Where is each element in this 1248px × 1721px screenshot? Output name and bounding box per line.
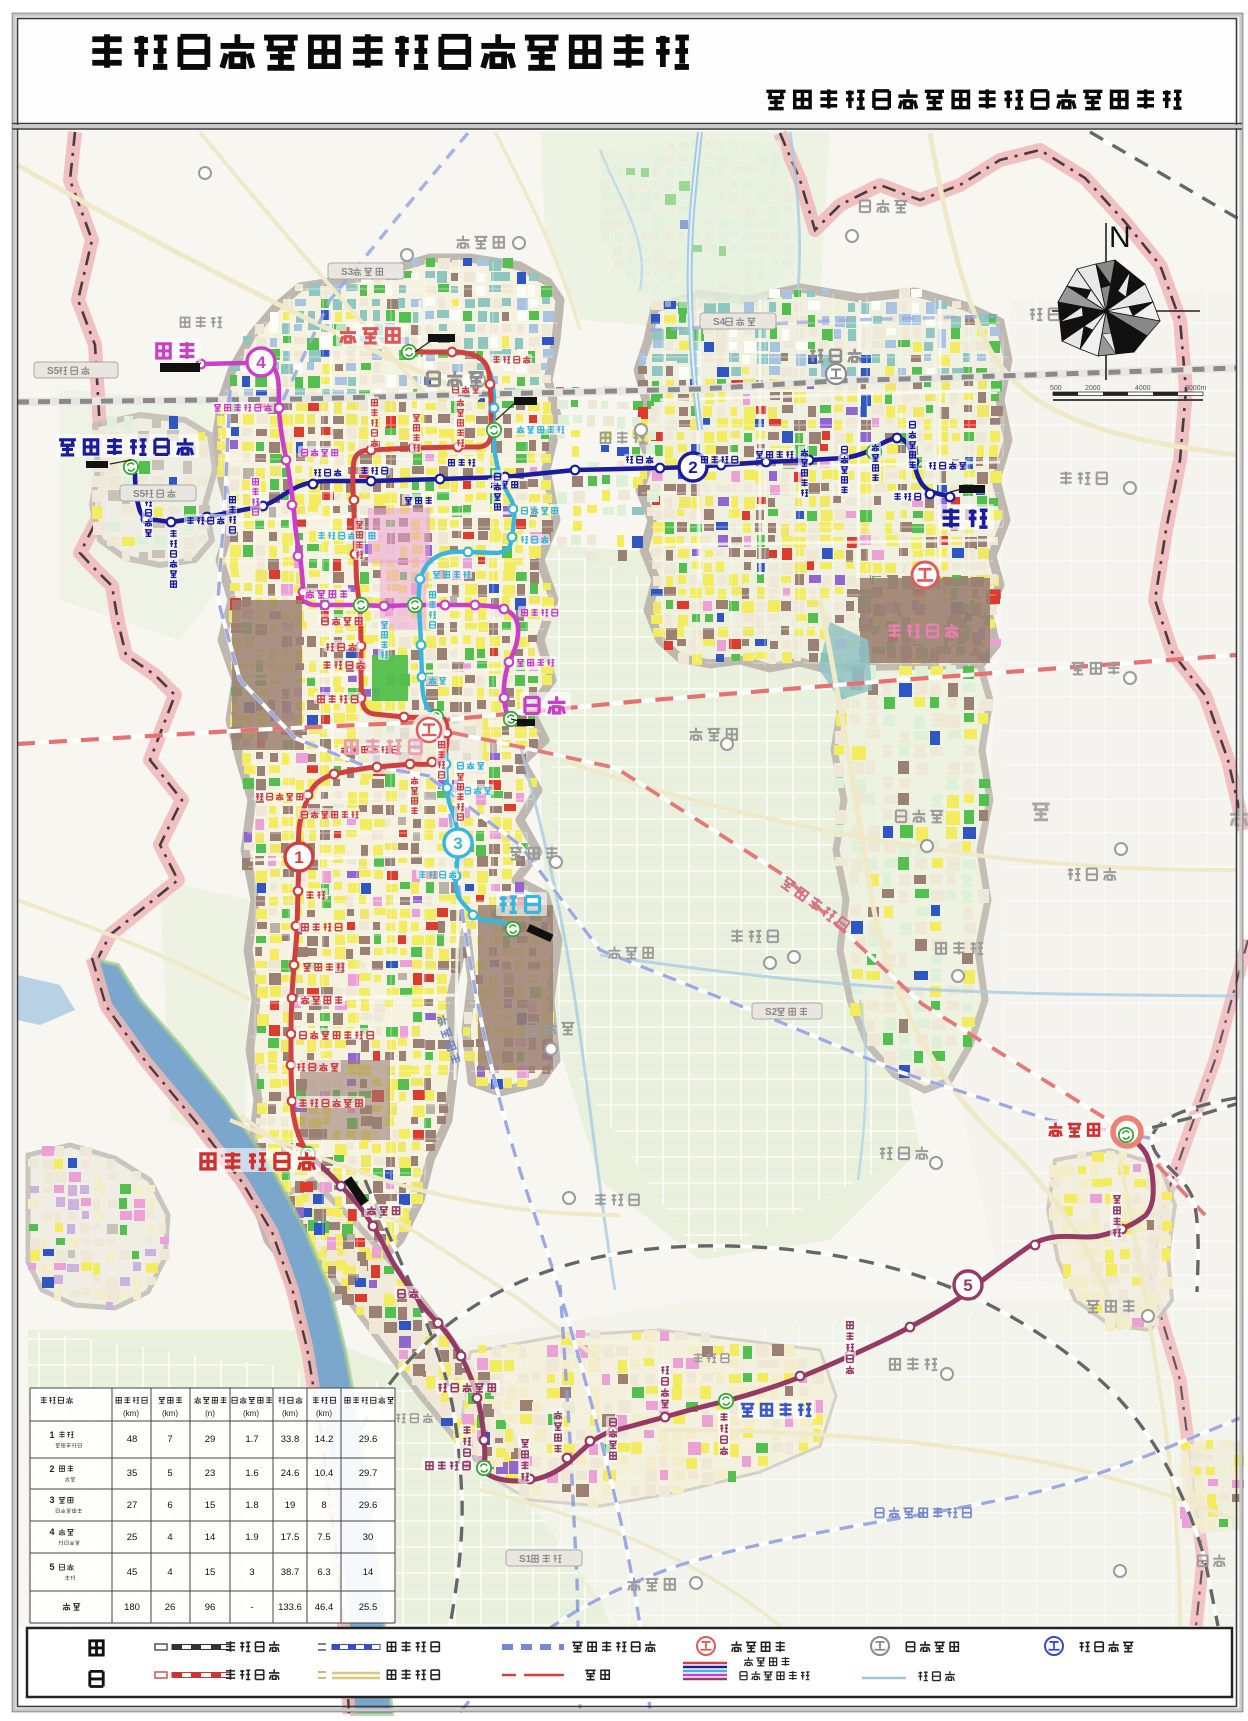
svg-text:-: - xyxy=(250,1602,253,1613)
svg-text:29.7: 29.7 xyxy=(359,1468,378,1479)
svg-text:15: 15 xyxy=(205,1500,216,1511)
svg-text:38.7: 38.7 xyxy=(281,1567,300,1578)
svg-text:8: 8 xyxy=(321,1500,326,1511)
svg-text:29.6: 29.6 xyxy=(359,1434,378,1445)
svg-text:29: 29 xyxy=(205,1434,216,1445)
svg-text:96: 96 xyxy=(205,1602,216,1613)
svg-text:14: 14 xyxy=(363,1567,374,1578)
svg-text:3: 3 xyxy=(249,1567,254,1578)
svg-text:35: 35 xyxy=(127,1468,138,1479)
svg-text:2: 2 xyxy=(688,458,697,477)
svg-text:46.4: 46.4 xyxy=(315,1602,334,1613)
svg-text:7: 7 xyxy=(167,1434,172,1445)
svg-text:1: 1 xyxy=(49,1430,54,1440)
svg-text:4: 4 xyxy=(256,353,266,372)
svg-text:180: 180 xyxy=(124,1602,140,1613)
svg-text:S4: S4 xyxy=(713,317,726,328)
svg-text:14.2: 14.2 xyxy=(315,1434,334,1445)
svg-text:25.5: 25.5 xyxy=(359,1602,378,1613)
svg-text:4000: 4000 xyxy=(1135,385,1151,392)
svg-text:2000: 2000 xyxy=(1085,385,1101,392)
svg-text:14: 14 xyxy=(205,1532,216,1543)
svg-text:48: 48 xyxy=(127,1434,138,1445)
svg-text:1: 1 xyxy=(294,848,303,867)
svg-text:3: 3 xyxy=(453,834,462,853)
svg-text:(n): (n) xyxy=(205,1409,215,1418)
svg-text:6: 6 xyxy=(167,1500,172,1511)
svg-text:4: 4 xyxy=(167,1532,172,1543)
svg-text:2: 2 xyxy=(49,1464,54,1474)
svg-text:(km): (km) xyxy=(316,1409,332,1418)
svg-text:(km): (km) xyxy=(123,1409,139,1418)
svg-text:7.5: 7.5 xyxy=(317,1532,330,1543)
svg-text:S3: S3 xyxy=(341,267,354,278)
svg-text:6.3: 6.3 xyxy=(317,1567,330,1578)
svg-text:500: 500 xyxy=(1050,385,1062,392)
svg-text:3: 3 xyxy=(49,1495,54,1505)
svg-text:4: 4 xyxy=(49,1527,54,1537)
svg-text:S5: S5 xyxy=(133,489,146,500)
svg-text:29.6: 29.6 xyxy=(359,1500,378,1511)
svg-text:S1: S1 xyxy=(519,1554,532,1565)
svg-text:1.7: 1.7 xyxy=(245,1434,258,1445)
svg-text:15: 15 xyxy=(205,1567,216,1578)
svg-text:(km): (km) xyxy=(243,1409,259,1418)
svg-text:8000m: 8000m xyxy=(1185,385,1207,392)
svg-text:1.8: 1.8 xyxy=(245,1500,258,1511)
svg-text:24.6: 24.6 xyxy=(281,1468,300,1479)
svg-text:19: 19 xyxy=(285,1500,296,1511)
svg-text:33.8: 33.8 xyxy=(281,1434,300,1445)
svg-text:(km): (km) xyxy=(282,1409,298,1418)
svg-text:27: 27 xyxy=(127,1500,138,1511)
svg-text:17.5: 17.5 xyxy=(281,1532,300,1543)
svg-text:S5: S5 xyxy=(47,366,60,377)
svg-text:30: 30 xyxy=(363,1532,374,1543)
svg-text:10.4: 10.4 xyxy=(315,1468,334,1479)
svg-text:4: 4 xyxy=(167,1567,172,1578)
svg-text:5: 5 xyxy=(167,1468,172,1479)
svg-text:5: 5 xyxy=(963,1276,972,1295)
svg-text:5: 5 xyxy=(49,1562,54,1572)
svg-text:S2: S2 xyxy=(765,1007,778,1018)
svg-text:1.6: 1.6 xyxy=(245,1468,258,1479)
svg-text:1.9: 1.9 xyxy=(245,1532,258,1543)
svg-text:133.6: 133.6 xyxy=(278,1602,302,1613)
svg-text:N: N xyxy=(1109,221,1131,254)
svg-text:(km): (km) xyxy=(162,1409,178,1418)
svg-text:25: 25 xyxy=(127,1532,138,1543)
svg-text:23: 23 xyxy=(205,1468,216,1479)
svg-text:45: 45 xyxy=(127,1567,138,1578)
svg-text:26: 26 xyxy=(165,1602,176,1613)
